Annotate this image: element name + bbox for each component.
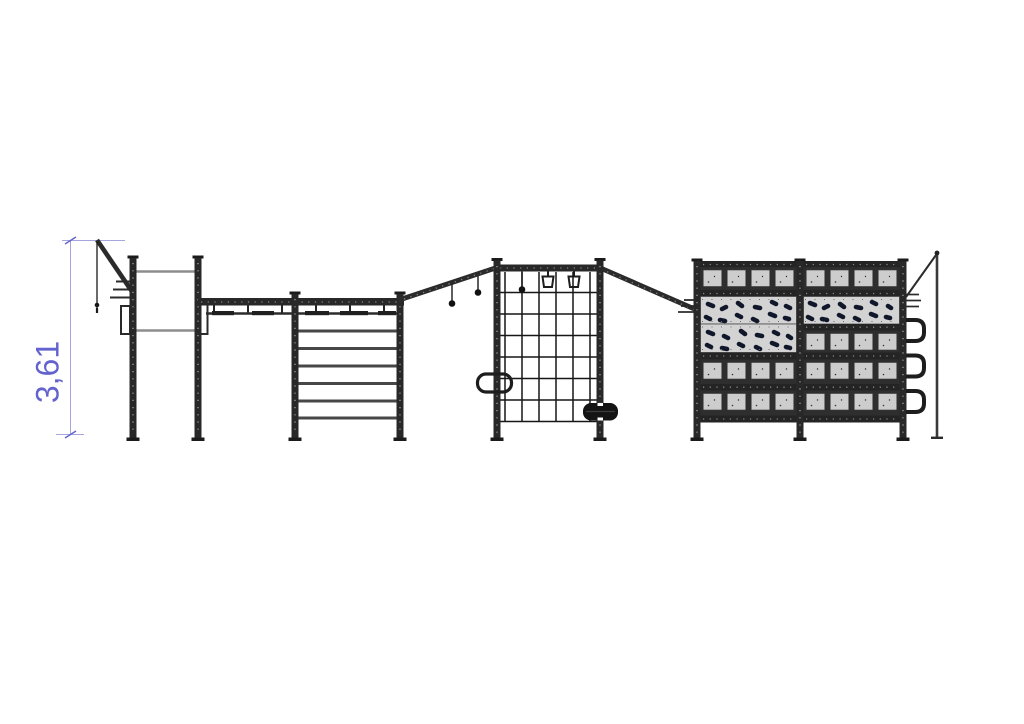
- climbing-holds-panel: [701, 297, 797, 325]
- wall-bars-ladder: [299, 331, 397, 418]
- upright-post: [292, 294, 299, 440]
- window-panel-row: [804, 267, 900, 290]
- base-foot: [691, 438, 704, 442]
- base-foot: [794, 438, 807, 442]
- rope-knot: [95, 303, 100, 308]
- climbing-wall: [678, 259, 924, 442]
- cargo-net: [500, 272, 597, 422]
- post-bracket-left: [121, 306, 130, 334]
- technical-drawing-canvas: 3,61: [0, 0, 1024, 724]
- base-foot: [394, 438, 407, 442]
- sloped-obstacle-beams: [399, 267, 699, 312]
- base-foot: [491, 438, 504, 442]
- wall-top-rail: [701, 261, 797, 268]
- sloped-beam-left: [399, 267, 500, 301]
- window-panel-row: [701, 267, 797, 290]
- window-panel-row: [701, 360, 797, 385]
- upright-post: [494, 261, 501, 441]
- upright-post: [397, 294, 404, 440]
- net-top-beam: [497, 265, 600, 272]
- wall-bottom-rail: [804, 416, 900, 423]
- sloped-beam-right: [597, 267, 699, 312]
- guy-rope: [906, 255, 936, 297]
- height-dimension: 3,61: [29, 237, 125, 438]
- dimension-value-label: 3,61: [29, 341, 65, 403]
- wall-top-rail: [804, 261, 900, 268]
- cargo-net-frame: [478, 258, 619, 441]
- base-foot: [289, 438, 302, 442]
- base-foot: [897, 438, 910, 442]
- tire-step: [583, 403, 618, 421]
- base-foot: [192, 438, 205, 442]
- wall-rail: [804, 324, 900, 331]
- climbing-holds-panel: [701, 324, 797, 353]
- rope-arm-beam: [97, 240, 133, 293]
- wall-rail: [701, 353, 797, 360]
- wall-bottom-rail: [701, 416, 797, 423]
- wall-rail: [701, 290, 797, 297]
- window-panel-row: [804, 331, 900, 353]
- staple-rungs: [906, 320, 924, 412]
- wall-rail: [701, 384, 797, 391]
- wall-rail: [804, 353, 900, 360]
- wall-rail: [804, 290, 900, 297]
- pole-top-knob: [935, 251, 940, 256]
- climbing-holds-panel: [804, 297, 900, 325]
- base-foot: [127, 438, 140, 442]
- window-panel-row: [804, 360, 900, 385]
- hanging-ball-grips: [449, 271, 526, 307]
- window-panel-row: [804, 391, 900, 416]
- climbing-rope-arm: [95, 240, 133, 313]
- pull-up-station: [121, 256, 208, 442]
- rig-elevation-drawing: 3,61: [0, 0, 1024, 724]
- wall-rail: [804, 384, 900, 391]
- gym-rings: [543, 270, 580, 287]
- base-foot: [594, 438, 607, 442]
- monkey-bar-section: [198, 292, 407, 442]
- window-panel-row: [701, 391, 797, 416]
